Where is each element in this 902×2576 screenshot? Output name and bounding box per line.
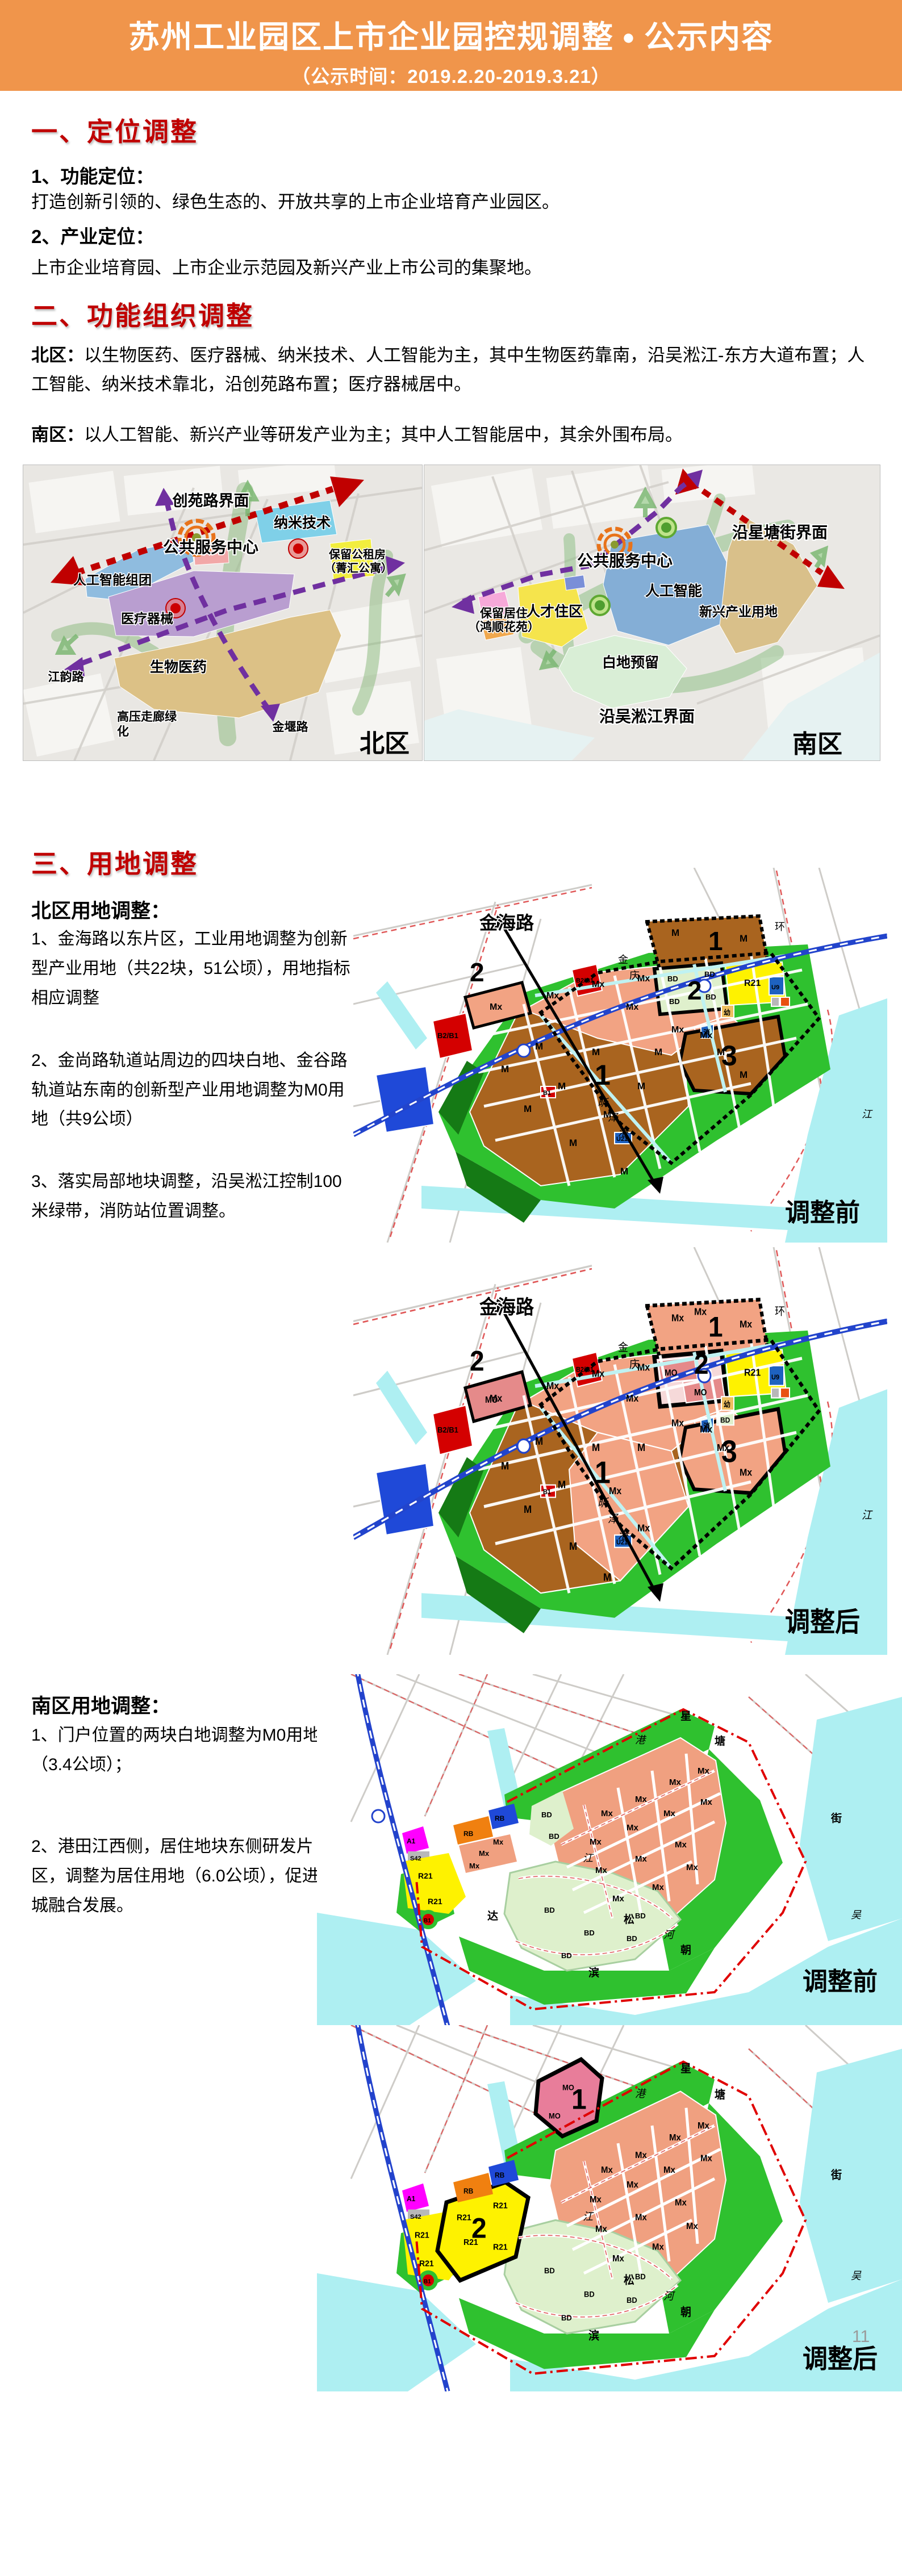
label-reserved-residence-line2: （鸿顺花苑） — [468, 620, 540, 634]
page-number: 11 — [852, 2327, 870, 2347]
code-mx: Mx — [546, 1381, 559, 1392]
river-char: 泽 — [608, 1112, 619, 1123]
code-m: M — [535, 1435, 543, 1447]
map-tag-before: 调整前 — [803, 1968, 878, 1996]
label-white-reserve: 白地预留 — [602, 654, 659, 671]
code-bd: BD — [584, 2290, 595, 2298]
code-fire: 消 — [703, 1421, 710, 1431]
road-char: 星 — [680, 2063, 691, 2075]
code-mx: Mx — [671, 1417, 684, 1429]
label-medical-device: 医疗器械 — [121, 611, 173, 626]
river-char: 江 — [583, 1852, 594, 1864]
code-bd: BD — [704, 970, 715, 978]
publicity-period: （公示时间：2019.2.20-2019.3.21） — [0, 61, 902, 89]
code-mx: Mx — [740, 1319, 753, 1330]
title-text: 苏州工业园区上市企业园控规调整 — [128, 19, 614, 55]
code-m: M — [569, 1540, 577, 1552]
page-title: 苏州工业园区上市企业园控规调整●公示内容 — [0, 0, 902, 57]
s3-north-items: 1、金海路以东片区，工业用地调整为创新型产业用地（共22块，51公顷），用地指标… — [31, 925, 358, 1259]
list-item: 1、门户位置的两块白地调整为M0用地（3.4公顷）； — [31, 1721, 341, 1780]
road-char: 环 — [775, 921, 785, 932]
label-public-service-center: 公共服务中心 — [163, 538, 258, 556]
road-char: 朝 — [680, 1944, 691, 1956]
code-m: M — [603, 1571, 611, 1583]
marker-2: 2 — [470, 1345, 485, 1377]
code-m: M — [592, 1441, 600, 1453]
code-mx: Mx — [469, 1862, 480, 1870]
marker-1: 1 — [595, 1059, 611, 1091]
code-bd: BD — [544, 1906, 555, 1914]
river-char: 港 — [618, 1127, 630, 1138]
code-mx: Mx — [601, 2165, 613, 2175]
s2-north-paragraph: 北区：以生物医药、医疗器械、纳米技术、人工智能为主，其中生物医药靠南，沿吴淞江-… — [31, 341, 879, 399]
s3-south-head: 南区用地调整： — [31, 1690, 170, 1719]
road-char: 达 — [487, 1909, 498, 1922]
code-mx: Mx — [590, 1837, 602, 1847]
code-r21: R21 — [493, 2201, 508, 2210]
road-char: 松 — [624, 1913, 634, 1926]
road-char: 塘 — [715, 1734, 725, 1747]
code-mx: Mx — [698, 2121, 709, 2131]
s2-south-label: 南区： — [31, 425, 84, 445]
code-m0: MO — [694, 1389, 707, 1398]
code-mx: Mx — [637, 1523, 650, 1534]
code-mx: Mx — [595, 1866, 607, 1875]
river-char: 港 — [635, 2088, 647, 2100]
code-mx: Mx — [675, 1840, 687, 1850]
label-ai: 人工智能 — [645, 583, 702, 599]
river-char: 江 — [862, 1509, 873, 1521]
s3-north-head: 北区用地调整： — [31, 895, 170, 924]
code-m0: MO — [549, 2111, 561, 2120]
code-rb: RB — [495, 1814, 505, 1822]
label-jinhai-road: 金海路 — [479, 913, 534, 933]
code-bd: BD — [541, 1810, 552, 1819]
code-m: M — [501, 1064, 509, 1074]
code-r21: R21 — [419, 2259, 434, 2268]
map-tag-after: 调整后 — [785, 1607, 860, 1637]
road-char: 街 — [830, 1812, 842, 1825]
south-district-map-canvas: 沿星塘街界面 公共服务中心 人工智能 新兴产业用地 保留居住 （鸿顺花苑） 人才… — [424, 465, 880, 760]
s2-north-text: 以生物医药、医疗器械、纳米技术、人工智能为主，其中生物医药靠南，沿吴淞江-东方大… — [31, 345, 865, 394]
code-r21: R21 — [493, 2243, 508, 2252]
code-mx: Mx — [626, 1392, 639, 1404]
code-b1: B1 — [424, 1918, 431, 1924]
code-u9: U9 — [771, 984, 779, 991]
code-m: M — [501, 1460, 509, 1472]
code-mx: Mx — [652, 1883, 664, 1892]
code-fire: 消 — [703, 1028, 710, 1036]
s1-item1-head: 1、功能定位： — [31, 161, 154, 189]
code-bd: BD — [667, 975, 678, 983]
section-2-title: 二、功能组织调整 — [31, 295, 254, 333]
label-emerging-industry: 新兴产业用地 — [699, 604, 778, 619]
code-mx: Mx — [700, 2153, 712, 2163]
code-m: M — [558, 1479, 566, 1491]
north-district-map: 创苑路界面 公共服务中心 纳米技术 保留公租房 （菁汇公寓） 人工智能组团 医疗… — [23, 465, 423, 761]
section-1-title: 一、定位调整 — [31, 111, 198, 149]
marker-2: 2 — [471, 2213, 487, 2244]
river-char: 江 — [862, 1109, 873, 1120]
label-south-zone-tag: 南区 — [792, 730, 842, 758]
map-tag-before: 调整前 — [785, 1199, 860, 1227]
section-3-title: 三、用地调整 — [31, 843, 198, 881]
code-bd: BD — [669, 997, 680, 1006]
marker-3: 3 — [721, 1040, 737, 1072]
code-mx: Mx — [601, 1809, 613, 1818]
code-bd: BD — [544, 2266, 555, 2275]
south-plan-after-map: Mx Mx Mx Mx Mx Mx Mx Mx Mx Mx Mx Mx Mx M… — [317, 2025, 902, 2391]
label-talent-housing: 人才住区 — [526, 603, 583, 620]
code-kindergarten: 幼 — [724, 1400, 730, 1409]
code-m: M — [535, 1041, 543, 1052]
south-plan-after-canvas: Mx Mx Mx Mx Mx Mx Mx Mx Mx Mx Mx Mx Mx M… — [317, 2025, 902, 2391]
code-bd: BD — [635, 2272, 646, 2281]
code-mx: Mx — [694, 1306, 707, 1318]
code-mx: Mx — [612, 1894, 624, 1904]
code-mx: Mx — [671, 1312, 684, 1324]
code-m: M — [740, 1069, 748, 1080]
label-public-service-center: 公共服务中心 — [577, 552, 673, 570]
road-char: 塘 — [715, 2088, 725, 2101]
code-mx: Mx — [626, 1002, 638, 1012]
code-mx: Mx — [635, 1795, 647, 1804]
road-char: 滨 — [588, 1966, 599, 1979]
label-ai-cluster: 人工智能组团 — [73, 572, 152, 587]
s3-south-items: 1、门户位置的两块白地调整为M0用地（3.4公顷）； 2、港田江西侧，居住地块东… — [31, 1721, 341, 1972]
code-mx: Mx — [669, 1778, 681, 1787]
marker-2: 2 — [470, 957, 485, 987]
label-biomedicine: 生物医药 — [150, 659, 207, 675]
label-rental-line1: 保留公租房 — [328, 547, 386, 561]
code-m: M — [637, 1081, 645, 1092]
code-mx: Mx — [671, 1025, 684, 1035]
road-char: 金 — [618, 1341, 628, 1353]
code-mx: Mx — [595, 2224, 607, 2234]
code-kindergarten: 幼 — [724, 1008, 730, 1017]
s2-north-label: 北区： — [31, 345, 84, 365]
code-m: M — [524, 1103, 532, 1114]
list-item: 1、金海路以东片区，工业用地调整为创新型产业用地（共22块，51公顷），用地指标… — [31, 925, 358, 1013]
code-mx: Mx — [627, 2180, 638, 2190]
code-mx: Mx — [635, 2151, 647, 2160]
road-char: 朝 — [680, 2306, 691, 2319]
river-char: 港 — [618, 1529, 629, 1541]
marker-1: 1 — [571, 2084, 587, 2115]
map-tag-after: 调整后 — [803, 2344, 878, 2374]
list-item: 2、金尚路轨道站周边的四块白地、金谷路轨道站东南的创新型产业用地调整为M0用地（… — [31, 1046, 358, 1135]
code-m: M — [569, 1138, 577, 1148]
code-mx: Mx — [592, 980, 604, 989]
page-header: 苏州工业园区上市企业园控规调整●公示内容 （公示时间：2019.2.20-201… — [0, 0, 902, 91]
code-m0: MO — [485, 1396, 498, 1406]
code-bd: BD — [627, 1934, 637, 1943]
code-m: M — [620, 1166, 628, 1177]
code-a1: A1 — [407, 2195, 416, 2203]
marker-2: 2 — [694, 1348, 709, 1380]
code-mx: Mx — [663, 2165, 675, 2175]
marker-1: 1 — [595, 1456, 611, 1490]
code-mx: Mx — [590, 2195, 602, 2205]
label-hv-corridor-line2: 化 — [117, 725, 129, 738]
label-jiangyun-road: 江韵路 — [48, 670, 85, 684]
code-mx: Mx — [700, 1797, 712, 1807]
label-hv-corridor-line1: 高压走廊绿 — [117, 710, 177, 724]
code-bd: BD — [561, 1951, 572, 1960]
code-b2b1: B2/B1 — [576, 977, 594, 984]
river-char: 昕 — [598, 1496, 609, 1509]
code-mx: Mx — [686, 2222, 698, 2231]
code-b1: B1 — [424, 2278, 431, 2285]
code-b1: B1 — [543, 1090, 551, 1097]
river-char: 吴 — [851, 2269, 862, 2281]
marker-1: 1 — [708, 1311, 723, 1343]
road-char: 金 — [618, 954, 628, 965]
north-plan-before-map: M M M M M M M M M M M M M M Mx Mx Mx Mx … — [353, 868, 887, 1243]
river-char: 港 — [635, 1734, 647, 1746]
code-rb: RB — [495, 2171, 504, 2179]
code-bd: BD — [627, 2296, 637, 2305]
code-mx: Mx — [592, 1368, 605, 1379]
code-mx: Mx — [652, 2242, 664, 2252]
code-r21: R21 — [457, 2213, 471, 2222]
code-m: M — [654, 1047, 662, 1057]
code-m: M — [558, 1081, 566, 1092]
bullet-icon: ● — [614, 26, 644, 49]
label-north-zone-tag: 北区 — [360, 730, 410, 758]
code-r21: R21 — [428, 1897, 442, 1906]
zone-small-blue — [565, 575, 586, 591]
road-char: 庆 — [629, 970, 640, 981]
north-district-map-canvas: 创苑路界面 公共服务中心 纳米技术 保留公租房 （菁汇公寓） 人工智能组团 医疗… — [23, 465, 422, 760]
marker-1: 1 — [708, 926, 723, 956]
s1-item2-text: 上市企业培育园、上市企业示范园及新兴产业上市公司的集聚地。 — [31, 253, 872, 282]
south-plan-before-canvas: Mx Mx Mx Mx Mx Mx Mx Mx Mx Mx Mx Mx Mx M… — [317, 1674, 902, 2026]
river-char: 泽 — [608, 1512, 619, 1525]
code-mx: Mx — [627, 1823, 638, 1833]
label-jinhai-road: 金海路 — [479, 1296, 534, 1319]
code-m0: MO — [665, 1369, 678, 1378]
code-r21: R21 — [418, 1871, 433, 1880]
s2-south-text: 以人工智能、新兴产业等研发产业为主；其中人工智能居中，其余外围布局。 — [84, 425, 683, 445]
code-r21: R21 — [744, 978, 761, 988]
code-mx: Mx — [612, 2254, 624, 2264]
code-a1: A1 — [407, 1837, 416, 1845]
code-bd: BD — [705, 993, 716, 1001]
north-plan-after-map: M M M M M M M M Mx Mx Mx Mx Mx Mx Mx Mx … — [353, 1247, 887, 1655]
river-char: 吴 — [851, 1909, 862, 1921]
marker-3: 3 — [721, 1435, 737, 1469]
code-mx: Mx — [635, 1854, 647, 1864]
label-chuangyuan-interface: 创苑路界面 — [172, 492, 249, 509]
code-mx: Mx — [493, 1838, 504, 1846]
code-mx: Mx — [490, 1002, 502, 1012]
code-b1: B1 — [543, 1489, 552, 1496]
code-mx: Mx — [686, 1863, 698, 1872]
road-char: 松 — [624, 2273, 635, 2286]
code-m: M — [524, 1503, 532, 1515]
code-u9: U9 — [771, 1374, 779, 1381]
code-s42: S42 — [410, 1855, 421, 1862]
south-plan-before-map: Mx Mx Mx Mx Mx Mx Mx Mx Mx Mx Mx Mx Mx M… — [317, 1674, 902, 2026]
code-bd: BD — [720, 1416, 730, 1425]
south-district-map: 沿星塘街界面 公共服务中心 人工智能 新兴产业用地 保留居住 （鸿顺花苑） 人才… — [424, 465, 880, 761]
code-mx: Mx — [546, 991, 559, 1001]
code-mx: Mx — [740, 1467, 753, 1478]
s1-item2-head: 2、产业定位： — [31, 221, 154, 249]
label-jinyan-road: 金堰路 — [272, 720, 309, 734]
title-suffix: 公示内容 — [644, 19, 774, 55]
code-b2b1: B2/B1 — [437, 1425, 458, 1435]
label-reserved-residence-line1: 保留居住 — [479, 607, 528, 620]
road-char: 星 — [680, 1710, 691, 1722]
river-char: 昕 — [598, 1097, 609, 1109]
code-mx: Mx — [609, 1486, 622, 1497]
code-mx: Mx — [698, 1766, 709, 1776]
code-mx: Mx — [663, 1809, 675, 1818]
river-char: 江 — [583, 2210, 595, 2222]
north-plan-after-canvas: M M M M M M M M Mx Mx Mx Mx Mx Mx Mx Mx … — [353, 1247, 887, 1655]
label-nano-tech: 纳米技术 — [274, 515, 331, 531]
code-m: M — [671, 927, 679, 938]
code-m: M — [740, 933, 748, 944]
road-char: 庆 — [629, 1358, 640, 1371]
river-char: 河 — [663, 1929, 675, 1941]
s1-item1-text: 打造创新引领的、绿色生态的、开放共享的上市企业培育产业园区。 — [31, 187, 872, 216]
code-m: M — [637, 1441, 645, 1453]
code-mx: Mx — [669, 2133, 681, 2143]
list-item: 2、港田江西侧，居住地块东侧研发片区，调整为居住用地（6.0公顷），促进产城融合… — [31, 1832, 341, 1921]
road-char: 环 — [775, 1305, 785, 1318]
code-r21: R21 — [415, 2231, 429, 2240]
code-rb: RB — [463, 2187, 473, 2195]
code-rb: RB — [463, 1830, 474, 1838]
code-m: M — [592, 1047, 600, 1057]
code-s42: S42 — [410, 2214, 421, 2220]
s2-south-paragraph: 南区：以人工智能、新兴产业等研发产业为主；其中人工智能居中，其余外围布局。 — [31, 420, 879, 449]
marker-2: 2 — [687, 976, 702, 1005]
code-bd: BD — [561, 2314, 572, 2322]
code-r21: R21 — [744, 1367, 761, 1378]
label-rental-line2: （菁汇公寓） — [324, 561, 392, 575]
code-bd: BD — [549, 1832, 559, 1841]
code-b2b1: B2/B1 — [576, 1366, 594, 1373]
code-mx: Mx — [479, 1849, 490, 1858]
code-bd: BD — [584, 1929, 595, 1937]
code-mx: Mx — [675, 2198, 687, 2207]
code-b2b1: B2/B1 — [437, 1031, 458, 1040]
code-bd: BD — [635, 1912, 646, 1920]
road-char: 滨 — [588, 2329, 600, 2342]
road-char: 街 — [830, 2168, 842, 2181]
list-item: 3、落实局部地块调整，沿吴淞江控制100米绿带，消防站位置调整。 — [31, 1167, 358, 1226]
code-mx: Mx — [635, 2213, 647, 2222]
label-xingtang-interface: 沿星塘街界面 — [732, 523, 828, 541]
label-wusong-interface: 沿吴淞江界面 — [599, 708, 695, 725]
north-plan-before-canvas: M M M M M M M M M M M M M M Mx Mx Mx Mx … — [353, 868, 887, 1243]
